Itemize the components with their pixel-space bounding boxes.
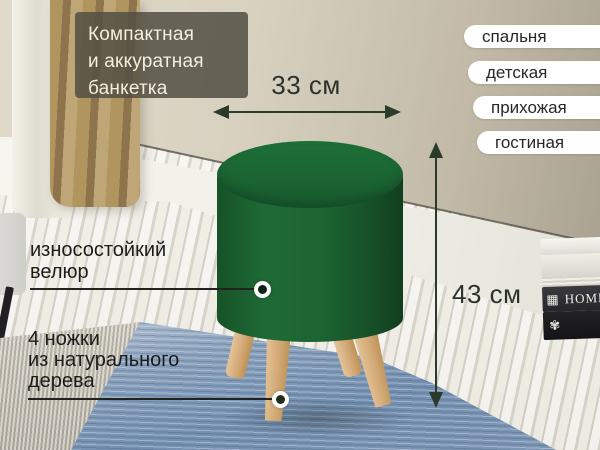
feature-line: 4 ножки (28, 329, 179, 350)
velour-feature-label: износостойкий велюр (30, 239, 166, 283)
white-book (541, 253, 600, 277)
height-arrow-shaft (435, 155, 437, 395)
feature-line: износостойкий (30, 239, 166, 261)
book-title: HOME (564, 289, 600, 306)
floral-ornament-icon: ✾ (549, 317, 562, 333)
gray-chair (0, 213, 26, 295)
home-book-spine: ▦ HOME (542, 285, 600, 312)
floral-book-spine: ✾ (543, 310, 600, 340)
legs-callout-line (28, 398, 274, 400)
legs-callout-dot-icon (272, 391, 289, 408)
room-tag-bedroom: спальня (464, 25, 600, 48)
velour-callout-dot-icon (254, 281, 271, 298)
book-stack: ▦ HOME ✾ (536, 235, 600, 341)
room-tag-hallway: прихожая (473, 96, 600, 119)
feature-line: из натурального (28, 350, 179, 371)
title-line: Компактная (88, 21, 248, 48)
feature-line: велюр (30, 261, 166, 283)
title-box: Компактная и аккуратная банкетка (75, 12, 248, 98)
title-line: банкетка (88, 75, 248, 102)
ottoman-top (217, 141, 403, 208)
title-line: и аккуратная (88, 48, 248, 75)
feature-line: дерева (28, 371, 179, 392)
product-infographic: ▦ HOME ✾ Компактная и аккуратная банкетк… (0, 0, 600, 450)
legs-feature-label: 4 ножки из натурального дерева (28, 329, 179, 392)
arrow-down-icon (429, 392, 443, 408)
arrow-up-icon (429, 142, 443, 158)
room-tag-kids: детская (468, 61, 600, 84)
arrow-right-icon (385, 105, 401, 119)
room-tag-livingroom: гостиная (477, 131, 600, 154)
velour-callout-line (30, 288, 255, 290)
book-ornament-icon: ▦ (546, 291, 560, 307)
arrow-left-icon (213, 105, 229, 119)
width-arrow-shaft (226, 111, 388, 113)
width-dimension-label: 33 см (250, 70, 362, 101)
height-dimension-label: 43 см (452, 279, 522, 310)
